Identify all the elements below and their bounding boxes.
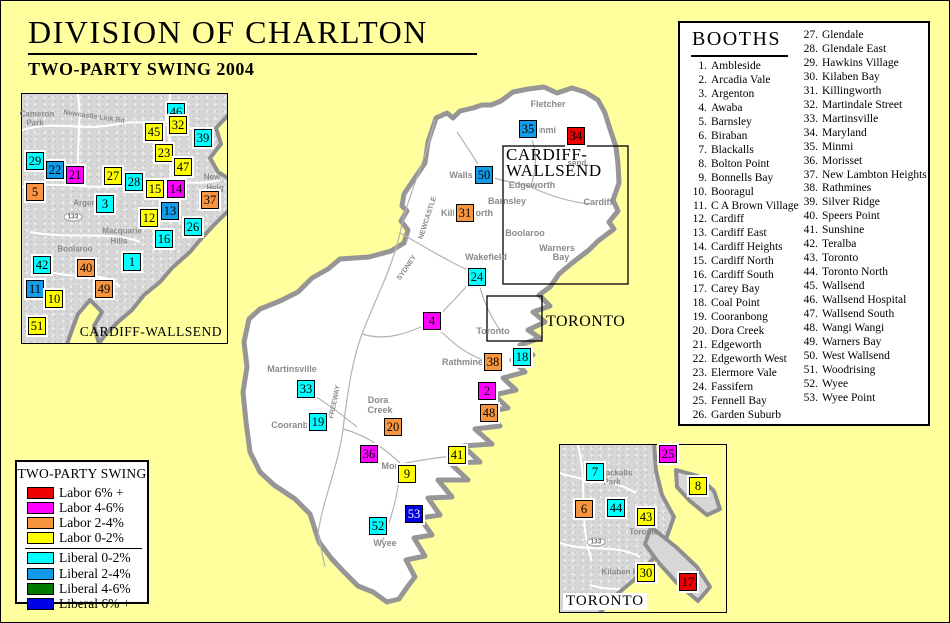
booth-name: Barnsley xyxy=(711,116,752,128)
legend-label: Labor 6% + xyxy=(59,485,124,501)
map-label: Bay xyxy=(553,252,570,262)
booth-list-item: 23.Elermore Vale xyxy=(688,367,799,381)
booth-square-51: 51 xyxy=(28,317,46,335)
booth-number: 18. xyxy=(688,297,707,311)
booth-number: 40. xyxy=(799,210,818,224)
legend-title: TWO-PARTY SWING xyxy=(17,466,147,482)
booth-list-item: 19.Cooranbong xyxy=(688,311,799,325)
swing-legend: TWO-PARTY SWING Labor 6% +Labor 4-6%Labo… xyxy=(15,460,149,604)
booth-list-item: 39.Silver Ridge xyxy=(799,196,927,210)
booth-name: Toronto xyxy=(822,252,858,264)
booth-name: Wallsend xyxy=(822,280,865,292)
map-label: Park xyxy=(603,478,620,487)
booth-name: Sunshine xyxy=(822,224,864,236)
map-label: Fletcher xyxy=(530,99,565,109)
booth-number: 22. xyxy=(688,353,707,367)
booth-list-item: 5.Barnsley xyxy=(688,116,799,130)
legend-row: Liberal 2-4% xyxy=(17,566,147,581)
booth-number: 9. xyxy=(688,172,707,186)
booth-number: 44. xyxy=(799,266,818,280)
booth-list-item: 40.Speers Point xyxy=(799,210,927,224)
booth-list-item: 31.Killingworth xyxy=(799,85,927,99)
booth-list-item: 51.Woodrising xyxy=(799,364,927,378)
booth-list-item: 4.Awaba xyxy=(688,102,799,116)
booth-name: Martindale Street xyxy=(822,99,902,111)
booth-number: 50. xyxy=(799,350,818,364)
booth-number: 46. xyxy=(799,294,818,308)
booth-list-item: 43.Toronto xyxy=(799,252,927,266)
booth-name: Edgeworth xyxy=(711,339,761,351)
booth-square-22: 22 xyxy=(46,161,64,179)
booth-list-item: 14.Cardiff Heights xyxy=(688,241,799,255)
booth-number: 7. xyxy=(688,144,707,158)
booth-number: 41. xyxy=(799,224,818,238)
map-label: Cameron xyxy=(20,110,55,119)
booth-name: Speers Point xyxy=(822,210,880,222)
booth-square-39: 39 xyxy=(194,129,212,147)
legend-swatch xyxy=(27,532,54,544)
booth-name: Teralba xyxy=(822,238,856,250)
booth-name: New Lambton Heights xyxy=(822,169,927,181)
booth-square-25: 25 xyxy=(659,445,677,463)
booth-list-item: 36.Morisset xyxy=(799,155,927,169)
booth-square-3: 3 xyxy=(96,195,114,213)
booth-square-37: 37 xyxy=(201,191,219,209)
booth-list-item: 30.Kilaben Bay xyxy=(799,71,927,85)
booth-square-18: 18 xyxy=(513,348,531,366)
booth-square-20: 20 xyxy=(384,418,402,436)
booth-number: 38. xyxy=(799,182,818,196)
route-shield: 133 xyxy=(587,538,606,547)
booth-name: C A Brown Village xyxy=(711,200,799,212)
map-label: Rathmines xyxy=(442,357,488,367)
booth-square-11: 11 xyxy=(26,280,44,298)
booth-square-19: 19 xyxy=(309,413,327,431)
booth-name: Cardiff North xyxy=(711,255,774,267)
booth-square-44: 44 xyxy=(607,499,625,517)
booth-name: Garden Suburb xyxy=(711,409,781,421)
booth-name: Cardiff xyxy=(711,213,744,225)
map-label: Toronto xyxy=(629,528,659,537)
booth-number: 39. xyxy=(799,196,818,210)
booth-list-item: 22.Edgeworth West xyxy=(688,353,799,367)
booth-list-item: 3.Argenton xyxy=(688,88,799,102)
booth-name: West Wallsend xyxy=(822,350,890,362)
booth-square-34: 34 xyxy=(567,127,585,145)
booth-number: 47. xyxy=(799,308,818,322)
booth-square-29: 29 xyxy=(26,152,44,170)
booth-square-23: 23 xyxy=(155,144,173,162)
booth-square-50: 50 xyxy=(475,166,493,184)
map-label: Wakefield xyxy=(465,252,507,262)
booth-square-42: 42 xyxy=(33,256,51,274)
booth-number: 8. xyxy=(688,158,707,172)
legend-label: Liberal 6% + xyxy=(59,596,130,612)
booth-number: 25. xyxy=(688,395,707,409)
booth-number: 6. xyxy=(688,130,707,144)
map-label: Creek xyxy=(367,405,392,415)
legend-body: Labor 6% +Labor 4-6%Labor 2-4%Labor 0-2%… xyxy=(17,485,147,612)
booth-name: Cardiff South xyxy=(711,269,774,281)
map-label: Martinsville xyxy=(267,364,317,374)
booth-number: 1. xyxy=(688,60,707,74)
booth-name: Dora Creek xyxy=(711,325,764,337)
booth-name: Glendale xyxy=(822,29,864,41)
booth-name: Glendale East xyxy=(822,43,886,55)
booth-list-item: 18.Coal Point xyxy=(688,297,799,311)
booth-list-item: 7.Blackalls xyxy=(688,144,799,158)
booth-square-47: 47 xyxy=(174,158,192,176)
booth-name: Morisset xyxy=(822,155,862,167)
booths-column-1: 1.Ambleside2.Arcadia Vale3.Argenton4.Awa… xyxy=(688,60,799,423)
map-label: Boolaroo xyxy=(57,245,92,254)
map-label: Boolaroo xyxy=(505,228,545,238)
booth-name: Woodrising xyxy=(822,364,875,376)
booths-panel: BOOTHS 1.Ambleside2.Arcadia Vale3.Argent… xyxy=(678,21,930,426)
booth-name: Warners Bay xyxy=(822,336,881,348)
booth-name: Wyee xyxy=(822,378,848,390)
booth-square-31: 31 xyxy=(456,204,474,222)
booth-square-10: 10 xyxy=(45,290,63,308)
booth-list-item: 37.New Lambton Heights xyxy=(799,169,927,183)
booth-name: Awaba xyxy=(711,102,743,114)
booth-number: 13. xyxy=(688,227,707,241)
map-label: Cardiff xyxy=(584,197,613,207)
booth-number: 29. xyxy=(799,57,818,71)
booth-square-9: 9 xyxy=(398,465,416,483)
legend-divider xyxy=(25,548,142,549)
booth-square-41: 41 xyxy=(448,446,466,464)
booth-number: 36. xyxy=(799,155,818,169)
legend-swatch xyxy=(27,487,54,499)
legend-swatch xyxy=(27,598,54,610)
map-label: Dora xyxy=(368,395,389,405)
map-label: Kilaben B xyxy=(602,568,639,577)
booth-list-item: 42.Teralba xyxy=(799,238,927,252)
booth-name: Ambleside xyxy=(711,60,761,72)
legend-label: Liberal 2-4% xyxy=(59,566,131,582)
booth-name: Hawkins Village xyxy=(822,57,899,69)
legend-row: Liberal 4-6% xyxy=(17,581,147,596)
booth-name: Cooranbong xyxy=(711,311,768,323)
booth-square-53: 53 xyxy=(405,505,423,523)
booth-number: 30. xyxy=(799,71,818,85)
booth-number: 19. xyxy=(688,311,707,325)
booth-list-item: 41.Sunshine xyxy=(799,224,927,238)
map-label: Toronto xyxy=(476,326,509,336)
booth-name: Booragul xyxy=(711,186,754,198)
booth-list-item: 13.Cardiff East xyxy=(688,227,799,241)
booth-name: Blackalls xyxy=(711,144,754,156)
booth-list-item: 46.Wallsend Hospital xyxy=(799,294,927,308)
booth-number: 3. xyxy=(688,88,707,102)
legend-row: Labor 4-6% xyxy=(17,500,147,515)
booth-list-item: 6.Biraban xyxy=(688,130,799,144)
map-page: DIVISION OF CHARLTON TWO-PARTY SWING 200… xyxy=(0,0,950,623)
booth-square-2: 2 xyxy=(478,382,496,400)
booth-square-48: 48 xyxy=(480,404,498,422)
booth-number: 45. xyxy=(799,280,818,294)
booth-square-49: 49 xyxy=(95,280,113,298)
booth-number: 32. xyxy=(799,99,818,113)
booth-name: Rathmines xyxy=(822,182,871,194)
legend-swatch xyxy=(27,583,54,595)
legend-row: Labor 0-2% xyxy=(17,531,147,546)
booth-name: Bolton Point xyxy=(711,158,769,170)
booth-list-item: 24.Fassifern xyxy=(688,381,799,395)
booth-number: 48. xyxy=(799,322,818,336)
booth-list-item: 25.Fennell Bay xyxy=(688,395,799,409)
booth-name: Fassifern xyxy=(711,381,753,393)
booth-number: 4. xyxy=(688,102,707,116)
booth-square-12: 12 xyxy=(140,209,158,227)
booth-name: Toronto North xyxy=(822,266,888,278)
booth-list-item: 21.Edgeworth xyxy=(688,339,799,353)
booth-number: 35. xyxy=(799,141,818,155)
booth-number: 21. xyxy=(688,339,707,353)
booth-number: 2. xyxy=(688,74,707,88)
booth-square-26: 26 xyxy=(184,218,202,236)
legend-row: Labor 2-4% xyxy=(17,515,147,530)
booth-number: 53. xyxy=(799,392,818,406)
booth-list-item: 17.Carey Bay xyxy=(688,283,799,297)
booth-name: Arcadia Vale xyxy=(711,74,771,86)
booth-number: 17. xyxy=(688,283,707,297)
booth-number: 31. xyxy=(799,85,818,99)
booth-list-item: 20.Dora Creek xyxy=(688,325,799,339)
legend-label: Labor 2-4% xyxy=(59,515,124,531)
booth-square-24: 24 xyxy=(468,268,486,286)
booth-square-45: 45 xyxy=(145,123,163,141)
booth-name: Wyee Point xyxy=(822,392,875,404)
booth-name: Wallsend South xyxy=(822,308,894,320)
booth-square-21: 21 xyxy=(66,166,84,184)
booth-square-14: 14 xyxy=(167,180,185,198)
booth-square-40: 40 xyxy=(77,259,95,277)
booth-number: 26. xyxy=(688,409,707,423)
legend-swatch xyxy=(27,502,54,514)
booth-name: Kilaben Bay xyxy=(822,71,880,83)
booth-name: Wangi Wangi xyxy=(822,322,884,334)
booth-square-27: 27 xyxy=(104,167,122,185)
legend-label: Liberal 4-6% xyxy=(59,581,131,597)
cardiff-wallsend-indicator-label: CARDIFF- WALLSEND xyxy=(506,147,602,179)
booth-number: 14. xyxy=(688,241,707,255)
toronto-inset-title: TORONTO xyxy=(563,593,647,610)
booth-list-item: 27.Glendale xyxy=(799,29,927,43)
legend-row: Liberal 0-2% xyxy=(17,551,147,566)
booth-list-item: 44.Toronto North xyxy=(799,266,927,280)
booths-column-2: 27.Glendale28.Glendale East29.Hawkins Vi… xyxy=(799,29,927,406)
booth-square-36: 36 xyxy=(360,445,378,463)
legend-swatch xyxy=(27,568,54,580)
booth-list-item: 49.Warners Bay xyxy=(799,336,927,350)
map-label: Hills xyxy=(111,237,128,246)
booth-list-item: 45.Wallsend xyxy=(799,280,927,294)
booth-name: Biraban xyxy=(711,130,747,142)
booth-number: 43. xyxy=(799,252,818,266)
map-label: Barnsley xyxy=(488,196,526,206)
booth-square-38: 38 xyxy=(484,353,502,371)
booth-number: 51. xyxy=(799,364,818,378)
legend-swatch xyxy=(27,552,54,564)
legend-row: Labor 6% + xyxy=(17,485,147,500)
booth-list-item: 32.Martindale Street xyxy=(799,99,927,113)
booth-square-28: 28 xyxy=(125,173,143,191)
booth-number: 5. xyxy=(688,116,707,130)
booth-square-4: 4 xyxy=(423,312,441,330)
booth-square-15: 15 xyxy=(146,180,164,198)
booth-number: 52. xyxy=(799,378,818,392)
map-label: New xyxy=(204,173,220,182)
booth-number: 37. xyxy=(799,169,818,183)
booth-square-8: 8 xyxy=(689,477,707,495)
booth-list-item: 10.Booragul xyxy=(688,186,799,200)
booth-name: Maryland xyxy=(822,127,867,139)
booth-name: Elermore Vale xyxy=(711,367,777,379)
booth-list-item: 52.Wyee xyxy=(799,378,927,392)
booth-list-item: 47.Wallsend South xyxy=(799,308,927,322)
booth-number: 33. xyxy=(799,113,818,127)
booth-name: Edgeworth West xyxy=(711,353,787,365)
route-shield: 133 xyxy=(64,213,83,222)
booth-name: Fennell Bay xyxy=(711,395,767,407)
booth-number: 11. xyxy=(688,200,707,214)
booth-name: Cardiff East xyxy=(711,227,767,239)
booth-list-item: 8.Bolton Point xyxy=(688,158,799,172)
booth-name: Bonnells Bay xyxy=(711,172,773,184)
booth-list-item: 35.Minmi xyxy=(799,141,927,155)
booth-number: 24. xyxy=(688,381,707,395)
booth-number: 34. xyxy=(799,127,818,141)
booth-name: Minmi xyxy=(822,141,853,153)
booth-list-item: 34.Maryland xyxy=(799,127,927,141)
booth-square-30: 30 xyxy=(637,564,655,582)
booth-list-item: 28.Glendale East xyxy=(799,43,927,57)
booth-list-item: 9.Bonnells Bay xyxy=(688,172,799,186)
booth-name: Coal Point xyxy=(711,297,760,309)
legend-label: Liberal 0-2% xyxy=(59,550,131,566)
booth-square-1: 1 xyxy=(123,253,141,271)
booth-square-17: 17 xyxy=(679,573,697,591)
booth-number: 12. xyxy=(688,213,707,227)
booth-number: 23. xyxy=(688,367,707,381)
booth-list-item: 26.Garden Suburb xyxy=(688,409,799,423)
legend-label: Labor 4-6% xyxy=(59,500,124,516)
map-label: Park xyxy=(26,119,43,128)
booth-list-item: 16.Cardiff South xyxy=(688,269,799,283)
booths-title-underline xyxy=(691,55,788,57)
map-label: Wyee xyxy=(373,538,396,548)
booth-number: 27. xyxy=(799,29,818,43)
booth-number: 28. xyxy=(799,43,818,57)
booth-name: Silver Ridge xyxy=(822,196,880,208)
map-label: Macquarie xyxy=(102,227,142,236)
booths-title: BOOTHS xyxy=(692,28,781,51)
booth-square-6: 6 xyxy=(575,500,593,518)
booth-square-52: 52 xyxy=(369,517,387,535)
booth-square-32: 32 xyxy=(169,116,187,134)
booth-number: 10. xyxy=(688,186,707,200)
booth-number: 42. xyxy=(799,238,818,252)
booth-name: Carey Bay xyxy=(711,283,760,295)
booth-name: Killingworth xyxy=(822,85,881,97)
booth-square-13: 13 xyxy=(161,202,179,220)
legend-label: Labor 0-2% xyxy=(59,530,124,546)
booth-name: Martinsville xyxy=(822,113,878,125)
booth-name: Cardiff Heights xyxy=(711,241,783,253)
map-label: Edgeworth xyxy=(509,180,556,190)
booth-square-16: 16 xyxy=(155,230,173,248)
booth-list-item: 15.Cardiff North xyxy=(688,255,799,269)
booth-list-item: 11.C A Brown Village xyxy=(688,200,799,214)
booth-number: 15. xyxy=(688,255,707,269)
booth-list-item: 12.Cardiff xyxy=(688,213,799,227)
booth-list-item: 33.Martinsville xyxy=(799,113,927,127)
legend-row: Liberal 6% + xyxy=(17,596,147,611)
booth-square-7: 7 xyxy=(586,463,604,481)
booth-square-5: 5 xyxy=(26,183,44,201)
toronto-indicator-label: TORONTO xyxy=(546,314,625,330)
booth-name: Wallsend Hospital xyxy=(822,294,906,306)
booth-square-43: 43 xyxy=(637,508,655,526)
booth-name: Argenton xyxy=(711,88,754,100)
legend-swatch xyxy=(27,517,54,529)
booth-number: 16. xyxy=(688,269,707,283)
booth-list-item: 53.Wyee Point xyxy=(799,392,927,406)
booth-list-item: 1.Ambleside xyxy=(688,60,799,74)
booth-square-35: 35 xyxy=(519,120,537,138)
booth-list-item: 29.Hawkins Village xyxy=(799,57,927,71)
booth-list-item: 50.West Wallsend xyxy=(799,350,927,364)
booth-list-item: 48.Wangi Wangi xyxy=(799,322,927,336)
cw-inset-title: CARDIFF-WALLSEND xyxy=(80,324,222,340)
booth-number: 20. xyxy=(688,325,707,339)
booth-number: 49. xyxy=(799,336,818,350)
booth-square-33: 33 xyxy=(297,380,315,398)
booth-list-item: 2.Arcadia Vale xyxy=(688,74,799,88)
booth-list-item: 38.Rathmines xyxy=(799,182,927,196)
